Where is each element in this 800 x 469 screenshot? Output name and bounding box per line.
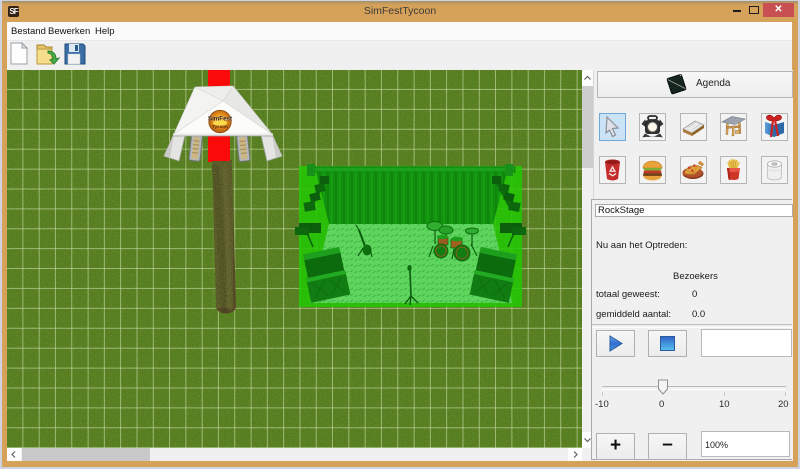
- svg-text:SimFest: SimFest: [208, 116, 232, 123]
- svg-text:Tycoon: Tycoon: [212, 124, 228, 129]
